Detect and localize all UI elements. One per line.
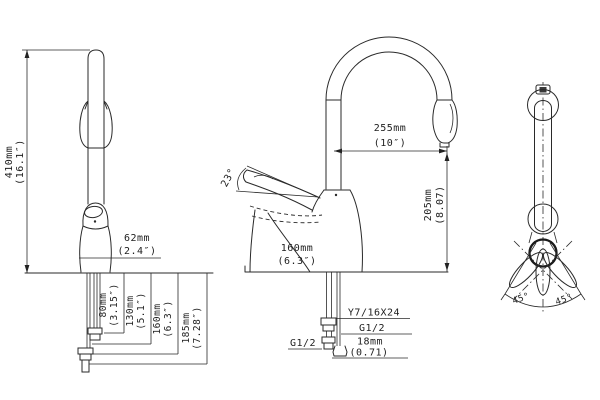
dimension-reach-255: 255mm (10″) [334, 123, 447, 153]
label-front-width-in: (2.4″) [117, 246, 156, 257]
rear-view: 45° 45° [501, 82, 585, 314]
dimension-handle-angle: 23° [219, 166, 318, 197]
front-view: 410mm (16.1″) 62mm (2.4″) 80mm (3.15″) 1… [4, 50, 213, 372]
label-depth-160-mm: 160mm [152, 303, 163, 334]
label-reach-in: (10″) [374, 138, 407, 149]
label-swivel-right: 45° [554, 292, 574, 307]
label-shank-in: (0.71) [349, 348, 388, 359]
label-thread-inlet: G1/2 [290, 338, 316, 349]
label-side-depth-in: (6.3″) [277, 256, 316, 267]
label-handle-angle: 23° [219, 167, 238, 189]
faucet-dimension-drawing: 410mm (16.1″) 62mm (2.4″) 80mm (3.15″) 1… [0, 0, 600, 400]
label-depth-185-in: (7.28″) [192, 306, 203, 350]
label-thread-spray: Y7/16X24 [348, 308, 400, 319]
rear-view-outline [501, 82, 585, 314]
thread-callouts: Y7/16X24 G1/2 G1/2 18mm (0.71) [288, 308, 412, 359]
label-depth-160-in: (6.3″) [163, 300, 174, 337]
label-side-height-in: (8.07) [435, 185, 446, 224]
label-front-height-in: (16.1″) [15, 139, 26, 185]
label-depth-130-mm: 130mm [125, 295, 136, 326]
dimension-height-410: 410mm (16.1″) [4, 50, 90, 273]
label-front-width-mm: 62mm [124, 233, 150, 244]
label-depth-80-in: (3.15″) [109, 283, 120, 327]
label-reach-mm: 255mm [374, 123, 407, 134]
label-swivel-left: 45° [511, 291, 531, 306]
dimension-height-205: 205mm (8.07) [423, 146, 449, 272]
label-depth-185-mm: 185mm [181, 312, 192, 343]
side-view: 23° 255mm (10″) 205mm (8.07) 160mm (6.3″… [219, 37, 457, 359]
dimension-depth-160: 160mm (6.3″) [277, 243, 316, 267]
label-front-height-mm: 410mm [4, 146, 15, 179]
label-side-depth-mm: 160mm [281, 243, 314, 254]
label-depth-130-in: (5.1″) [136, 292, 147, 329]
under-deck-dimensions: 80mm (3.15″) 130mm (5.1″) 160mm (6.3″) 1… [89, 273, 207, 364]
drawing-svg: 410mm (16.1″) 62mm (2.4″) 80mm (3.15″) 1… [0, 0, 600, 400]
label-side-height-mm: 205mm [423, 189, 434, 222]
label-depth-80-mm: 80mm [98, 293, 109, 318]
label-shank-mm: 18mm [357, 337, 383, 348]
dimension-width-62: 62mm (2.4″) [79, 233, 161, 258]
label-thread-hose: G1/2 [359, 323, 385, 334]
